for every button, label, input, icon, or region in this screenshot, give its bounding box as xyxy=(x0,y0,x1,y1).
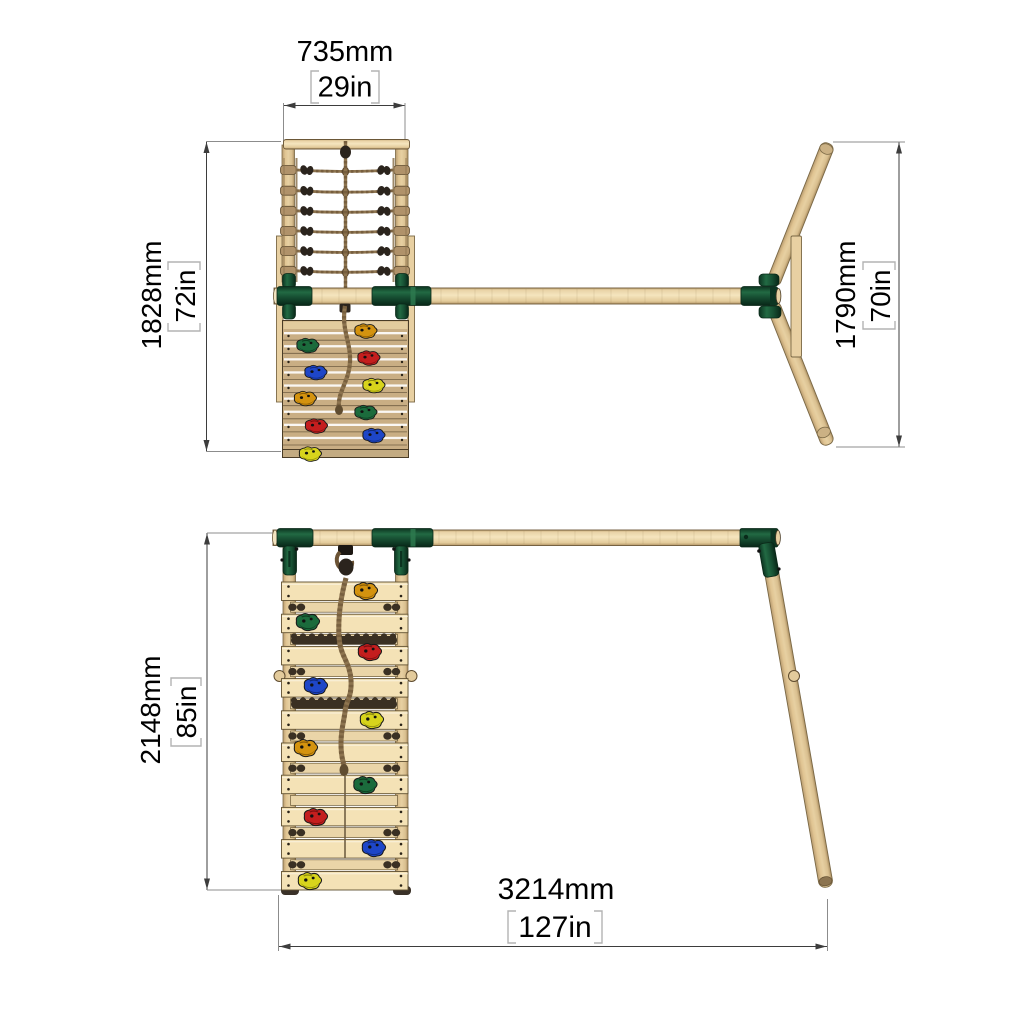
svg-text:3214mm: 3214mm xyxy=(498,873,615,906)
svg-text:85in: 85in xyxy=(171,686,202,739)
svg-text:1828mm: 1828mm xyxy=(136,241,167,350)
svg-text:1790mm: 1790mm xyxy=(830,241,861,350)
svg-text:29in: 29in xyxy=(318,72,373,104)
svg-text:72in: 72in xyxy=(170,270,201,323)
svg-text:70in: 70in xyxy=(865,270,896,323)
svg-text:2148mm: 2148mm xyxy=(135,656,166,765)
svg-text:127in: 127in xyxy=(518,911,591,944)
svg-text:735mm: 735mm xyxy=(297,36,394,68)
